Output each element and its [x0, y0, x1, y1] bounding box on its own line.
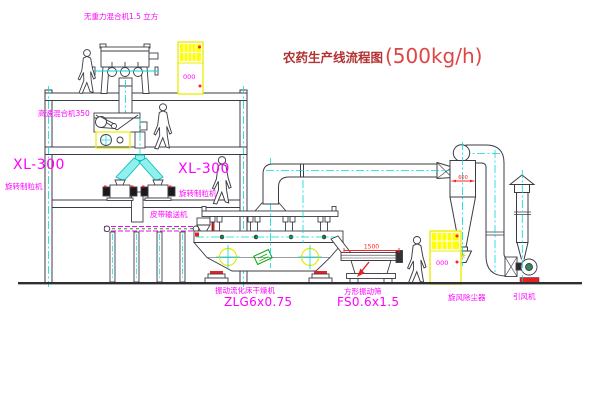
fan-inlet-box	[505, 257, 517, 277]
high-speed-mixer-label: 高速混合机350	[38, 110, 90, 118]
person-figure	[154, 104, 172, 149]
dryer-name-label: 振动流化床干燥机	[215, 287, 275, 295]
gravity-mixer-label: 无重力混合机1.5 立方	[84, 13, 158, 21]
control-cabinet-bottom: 000	[430, 231, 461, 284]
dryer-exhaust-duct	[263, 163, 452, 205]
diagram-title: 农药生产线流程图	[283, 52, 383, 65]
induced-draft-fan	[516, 259, 539, 283]
pesticide-production-line-diagram: 000	[0, 0, 600, 403]
screen-dimension: 1500	[344, 244, 399, 254]
dryer-model-label: ZLG6x0.75	[224, 296, 292, 308]
granulator-right	[141, 180, 175, 201]
screen-model-label: FS0.6x1.5	[337, 296, 399, 308]
belt-conveyor-label: 皮带输送机	[150, 211, 188, 219]
cyclone-label: 旋风除尘器	[448, 294, 486, 302]
person-figure	[78, 50, 95, 94]
granulator-left-model-label: XL-300	[13, 158, 65, 172]
person-figure	[408, 237, 426, 284]
screen-length-dimension: 1500	[364, 244, 379, 251]
diagram-title-capacity: (500kg/h)	[385, 46, 482, 66]
control-cabinet-top: 000	[178, 42, 203, 94]
cyclone-diameter-dimension: 600	[458, 175, 468, 181]
granulator-right-name-label: 旋转制粒机	[179, 190, 217, 198]
granulator-right-model-label: XL-300	[178, 162, 230, 176]
granulator-discharge-chute	[132, 192, 144, 222]
cabinet-top-panel-text: 000	[183, 73, 195, 81]
vibrating-screen	[341, 251, 403, 283]
granulator-left-name-label: 旋转制粒机	[5, 183, 43, 191]
fan-label: 引风机	[513, 293, 536, 301]
y-chute	[116, 155, 163, 181]
belt-conveyor	[104, 226, 199, 282]
cabinet-bottom-panel-text: 000	[436, 259, 448, 267]
